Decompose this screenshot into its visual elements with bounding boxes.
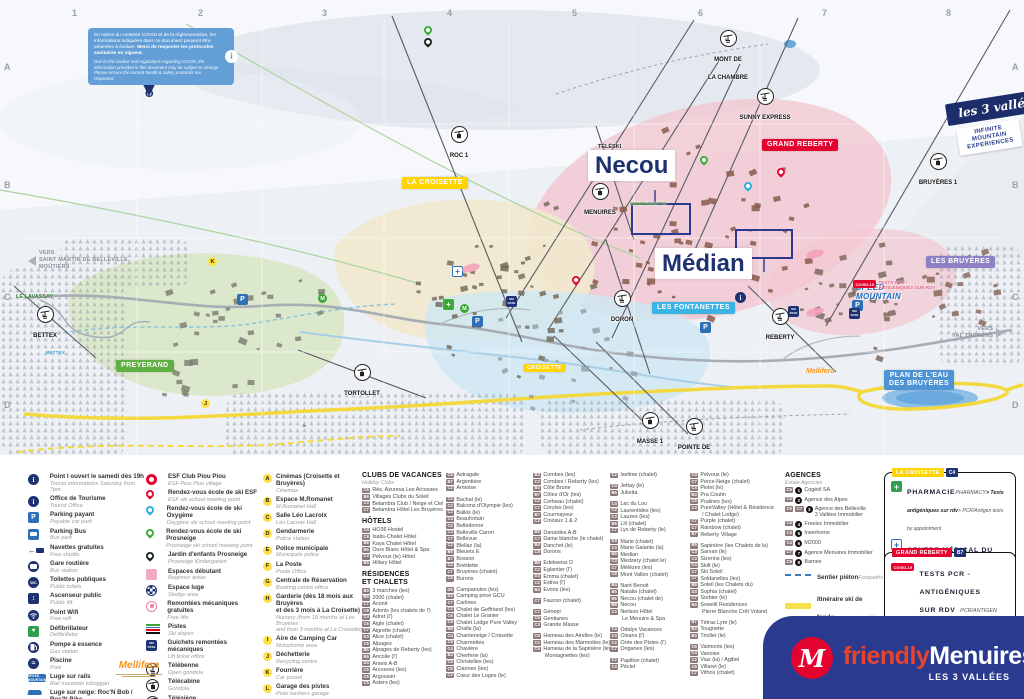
legend-item-wifi: Point WifiFree wifi <box>28 610 146 623</box>
grid-ref-chip: B7 <box>690 532 698 538</box>
directory-entry: B33 marches (les) <box>362 588 446 595</box>
grid-ref-chip: C7 <box>362 602 370 608</box>
luge-neige-icon <box>28 690 46 695</box>
menuires-monogram-icon: M <box>791 637 833 679</box>
grid-ref-chip: B6 <box>362 541 370 547</box>
directory-entry: C2Orée des Pistes (l') <box>610 640 694 647</box>
directory-entry: C4Adret (l') <box>362 614 446 621</box>
grid-ref-chip: B4 <box>690 602 698 608</box>
map-label-sunny-express: SUNNY EXPRESS <box>739 88 791 124</box>
grid-col-6: 6 <box>698 8 703 18</box>
map-label-bruyeres-1: BRUYÈRES 1 <box>912 153 964 189</box>
directory-entry: C2Cœur des Loges (le) <box>446 672 530 679</box>
grid-ref-chip: B3 <box>533 473 541 479</box>
letter-J-icon: J <box>263 652 272 661</box>
map-label-mont-de-la-chambre: MONT DELA CHAMBRE <box>702 30 754 84</box>
map-label-vers-saint-martin: VERS SAINT MARTIN DE BELLEVILLE, MOÛTIER… <box>28 250 130 271</box>
directory-entry: C4Chavière <box>446 646 530 653</box>
legend-item-letter-B: BEspace M.RomanetM.Romanet Hall <box>263 497 363 510</box>
grid-ref-chip: C3 <box>533 622 541 628</box>
map-label-roc-1: ROC 1 <box>433 126 485 162</box>
directory-entry: C7Aigrette (chalet) <box>362 627 446 634</box>
map-poi-letter: K <box>208 257 217 266</box>
grid-ref-chip: B5 <box>446 550 454 556</box>
legend-item-letter-A: ACinémas (Croisette et Bruyères)Cinemas <box>263 474 363 494</box>
legend-item-letter-K: KFourrièreCar pound <box>263 668 363 681</box>
directory-entry: C7Faucon (chalet) <box>533 598 617 605</box>
grid-ref-chip: C4 <box>610 501 618 507</box>
grid-ref-chip: C2 <box>446 563 454 569</box>
legend-item-letter-C: CSalle Léo LacroixLéo Lacroix Hall <box>263 513 363 526</box>
map-label-les-fontanettes: LES FONTANETTES <box>652 302 735 314</box>
grid-ref-chip: B6 <box>533 561 541 567</box>
grid-row-A: A <box>1012 62 1019 72</box>
directory-entry: C5Hameau de la Sapinière (le) <box>533 646 617 653</box>
directory-entry: C7Origanes (les) <box>610 646 694 653</box>
trail-dash: Sentier piétonFootpaths <box>785 566 885 584</box>
legend-item-pin-red: Rendez-vous école de ski ESFESF ski scho… <box>146 490 262 503</box>
letter-H-icon: H <box>263 594 272 603</box>
letter-C-icon: C <box>263 513 272 522</box>
grid-ref-chip: B7 <box>446 479 454 485</box>
grid-ref-chip: C5 <box>362 681 370 687</box>
directory-entry: D2Camping privé GCU <box>446 593 530 600</box>
grid-ref-chip: C7 <box>362 628 370 634</box>
grid-ref-chip: C4 <box>610 633 618 639</box>
grid-ref-chip: C3 <box>690 550 698 556</box>
mont-de-la-chambre-lift-icon <box>720 30 737 47</box>
map-label-bettex-lift: BETTEX <box>19 306 71 342</box>
grid-ref-chip: C4 <box>610 627 618 633</box>
directory-entry: C7Soldanelles (les) <box>690 575 774 582</box>
directory-entry: C7Bruyères (chalet) <box>446 569 530 576</box>
directory-entry: C2Viaz (la) / Agibel <box>690 657 774 664</box>
directory-entry: B5Challe (la) <box>446 626 530 633</box>
grid-ref-chip: B5 <box>610 490 618 496</box>
grid-ref-chip: C7 <box>362 507 370 513</box>
grid-ref-chip: C4 <box>446 633 454 639</box>
directory-column-3: B3Combes (les)C2Combes / Reberty (les)B4… <box>533 472 617 659</box>
grid-ref-chip: B7 <box>690 620 698 626</box>
pistes-icon <box>146 624 164 634</box>
grid-ref-chip: C3 <box>690 505 698 511</box>
parking-icon: P <box>28 512 46 523</box>
directory-entry: C4Chanteneige / Croisette <box>446 633 530 640</box>
directory-entry: C5Hameau des Airelles (le) <box>533 633 617 640</box>
grid-ref-chip: C2 <box>533 519 541 525</box>
legend-column-ski: ESF Club Piou PiouESF Piou Piou villageR… <box>146 474 262 699</box>
directory-entry: C2Hameau des Marmottes (le) <box>533 640 617 647</box>
grid-ref-chip: C7 <box>610 528 618 534</box>
map-label-menuires: MENUIRES <box>574 183 626 219</box>
wifi-icon <box>28 610 46 621</box>
sunny-express-lift-icon <box>757 88 774 105</box>
grand-reberty-tag: GRAND REBERTY <box>892 548 952 557</box>
grid-ref-chip: C3 <box>362 501 370 507</box>
grid-ref-chip: C4 <box>690 473 698 479</box>
map-poi-parking: P <box>700 322 711 333</box>
pointe-de-la-masse-lift-icon <box>686 418 703 435</box>
grid-ref-chip: C4 <box>362 615 370 621</box>
directory-entry: C2Cristaux 1 & 2 <box>533 518 617 525</box>
grid-ref-chip: C5 <box>446 576 454 582</box>
grid-ref-chip: D3 <box>533 574 541 580</box>
letter-A-icon: A <box>263 474 272 483</box>
agency-number-2: 2 <box>795 497 802 504</box>
map-poi-pink-zone <box>806 250 824 258</box>
directory-entry: C2Estiva (l') <box>533 580 617 587</box>
grid-ref-chip: C7 <box>690 525 698 531</box>
directory-entry: C4Jettay (le) <box>610 483 694 490</box>
directory-entry: C3Lauzes (les) <box>610 514 694 521</box>
grid-ref-chip: C2 <box>446 543 454 549</box>
directory-entry: C5Charmettes <box>446 639 530 646</box>
grid-ref-chip: C5 <box>533 550 541 556</box>
directory-entry: C4Beaufortain <box>446 516 530 523</box>
directory-header: CLUBS DE VACANCES <box>362 472 446 480</box>
grid-ref-chip: C4 <box>610 545 618 551</box>
legend-item-pistes: PistesSki slopes <box>146 624 262 637</box>
directory-entry: B6Edelweiss D <box>533 560 617 567</box>
directory-column-5: C4Pelvoux (le)C7Perce-Neige (chalet)C4Pi… <box>690 472 774 677</box>
brand-name: friendlyMenuires <box>843 642 1024 671</box>
directory-entry: C2Laurentides (les) <box>610 507 694 514</box>
directory-entry: B5Natalia (chalet) <box>610 589 694 596</box>
grid-ref-chip: C2 <box>533 640 541 646</box>
grid-col-4: 4 <box>447 8 452 18</box>
directory-entry: B3Triollet (le) <box>690 633 774 640</box>
legend-item-gas: Pompe à essenceGas station <box>28 642 146 655</box>
grid-ref-chip: C6 <box>610 572 618 578</box>
covid-box-title2: SUR RDV <box>919 607 955 614</box>
masse-1-lift-icon <box>642 412 659 429</box>
legend-item-bus-station: Gare routièreBus station <box>28 561 146 574</box>
pin-red-icon <box>146 490 164 498</box>
agencies-header: AGENCES <box>785 472 881 480</box>
directory-entry: C2Combes / Reberty (les) <box>533 479 617 486</box>
covid-19-map-badge: COVID-19 <box>853 280 876 288</box>
legend-item-free-lift: Remontées mécaniques gratuitesFree lifts <box>146 601 262 621</box>
grid-ref-chip: C6 <box>362 621 370 627</box>
directory-entry: C3Grande Masse <box>533 622 617 629</box>
directory-entry: C7Aconit <box>362 601 446 608</box>
dash-swatch <box>785 572 811 578</box>
directory-entry: C5Dorons <box>533 549 617 556</box>
grid-ref-chip: C7 <box>533 609 541 615</box>
legend-item-letter-G: GCentrale de RéservationBooking centre o… <box>263 578 363 591</box>
legend-item-letter-I: IAire de Camping CarMotorhome area <box>263 636 363 649</box>
map-label-median: Médian <box>655 248 752 279</box>
grid-ref-chip: B4 <box>533 543 541 549</box>
map-label-necou: Necou <box>588 150 675 181</box>
legend-item-wc: WCToilettes publiquesPublic toilets <box>28 577 146 590</box>
map-label-tortollet: TORTOLLET <box>336 364 388 400</box>
directory-entry: C2Belledonne <box>446 523 530 530</box>
grid-ref-chip: C7 <box>690 569 698 575</box>
legend-item-beginner: Espaces débutantBeginner areas <box>146 569 262 582</box>
yellow-swatch <box>785 603 811 609</box>
directory-entry: C7Coryles (les) <box>533 505 617 512</box>
directory-entry: C5Astragale <box>446 472 530 479</box>
grid-ref-chip: C5 <box>690 499 698 505</box>
directory-entry: C2Eglantier (l') <box>533 567 617 574</box>
grid-ref-chip: D3 <box>362 634 370 640</box>
agency-entry: C44Freeloc Immobilier <box>785 521 881 528</box>
agency-entry: C45Inserhome <box>785 530 881 537</box>
directory-entry: B5Median <box>610 551 694 558</box>
grid-ref-chip: C7 <box>446 600 454 606</box>
croisette-tag: LA CROISETTE <box>892 468 944 477</box>
directory-entry: C2Papillon (chalet) <box>610 657 694 664</box>
grid-ref-chip: C7 <box>610 647 618 653</box>
menuires-lift-icon <box>592 183 609 200</box>
grid-ref-chip: B3 <box>690 633 698 639</box>
agencies-subheader: Estate Agencies <box>785 480 881 486</box>
directory-entry: C2Balcons d'Olympie (les) <box>446 503 530 510</box>
grid-ref-chip: C4 <box>690 486 698 492</box>
grid-ref-chip: B5 <box>446 627 454 633</box>
directory-entry: C5Valmonts (les) <box>690 644 774 651</box>
directory-entry: B7Reberty Village <box>690 531 774 538</box>
grid-ref-chip: C4 <box>690 651 698 657</box>
grid-ref-chip: C5 <box>446 640 454 646</box>
directory-entry: B6Necou <box>610 602 694 609</box>
grid-ref-chip: C6 <box>533 616 541 622</box>
grid-ref-chip: B3 <box>690 627 698 633</box>
letter-I-icon: I <box>263 636 272 645</box>
directory-entry: B4Evons (les) <box>533 587 617 594</box>
agencies-list: AGENCESEstate AgenciesC51Cogéril SAC42Ag… <box>785 472 881 569</box>
directory-entry: B6Villages Clubs du Soleil <box>362 494 446 501</box>
grid-ref-chip: C4 <box>446 517 454 523</box>
grid-ref-chip: D2 <box>446 594 454 600</box>
directory-entry: C6Rés. Azureva Les Arcosses <box>362 487 446 494</box>
map-label-croisette-mini: CROISETTE <box>524 364 565 372</box>
directory-entry: B5Alpages de Reberty (les) <box>362 647 446 654</box>
reberty-lift-icon <box>772 308 789 325</box>
map-poi-pink-zone <box>806 308 824 316</box>
agency-number-5: 5 <box>795 530 802 537</box>
directory-entry: C2Blellaz (la) <box>446 542 530 549</box>
directory-entry: B4Danchet (le) <box>533 542 617 549</box>
directory-entry: C7Purple (chalet) <box>690 518 774 525</box>
grid-ref-chip: C7 <box>533 505 541 511</box>
wc-icon: WC <box>28 577 46 588</box>
grid-ref-chip: C5 <box>690 664 698 670</box>
ski-pass-icon: SKIPASS <box>146 640 164 651</box>
directory-entry: D3Sophia (chalet) <box>690 589 774 596</box>
defib-icon: ♥ <box>28 626 46 637</box>
directory-entry: C4Lac du Lou <box>610 501 694 508</box>
directory-entry: C2Boédette <box>446 562 530 569</box>
map-label-plan-de-leau-des-bruyeres: PLAN DE L'EAU DES BRUYÈRES <box>884 370 954 390</box>
map-label-grand-reberty: GRAND REBERTY <box>762 139 838 151</box>
legend-item-ski-pass: SKIPASSGuichets remontées mécaniquesLift… <box>146 640 262 660</box>
directory-entry: C5Clarines (les) <box>446 666 530 673</box>
grid-ref-chip: C2 <box>446 486 454 492</box>
directory-entry: B4Soweill Residences <box>690 602 774 609</box>
grid-ref-chip: C7 <box>690 596 698 602</box>
grid-ref-chip: C2 <box>446 510 454 516</box>
directory-entry: C4Oisans (l') <box>610 633 694 640</box>
directory-entry: B5Julietta <box>610 490 694 497</box>
arrow-left-icon <box>28 256 36 266</box>
directory-entry: C3Belleville Caron <box>446 529 530 536</box>
directory-header-2: ET CHALETS <box>362 579 446 587</box>
map-poi-pin-green <box>424 26 432 34</box>
grid-ref-chip: C2 <box>690 657 698 663</box>
grid-ref-chip: B5 <box>610 552 618 558</box>
info-icon: i <box>28 474 46 485</box>
legend-item-letter-E: EPolice municipaleMunicipale police <box>263 546 363 559</box>
legend-item-letter-L: LGarage des pistesPiste bashers garage <box>263 684 363 697</box>
covid-notice: En raison du contexte COVID et de la rég… <box>88 28 234 85</box>
grid-col-3: 3 <box>322 8 327 18</box>
map-poi-info: i <box>735 292 746 303</box>
grid-ref-chip: D6 <box>446 587 454 593</box>
directory-entry: C3Sizerins (les) <box>690 556 774 563</box>
legend-item-letter-F: FLa PostePoste Office <box>263 562 363 575</box>
map-poi-cross-green: + <box>443 299 454 310</box>
directory-entry: C4HO36 Hostel <box>362 527 446 534</box>
grid-ref-chip: C3 <box>610 609 618 615</box>
brand-subtitle: LES 3 VALLÉES <box>929 672 1010 682</box>
grid-ref-chip: C3 <box>690 556 698 562</box>
tortollet-lift-icon <box>354 364 371 381</box>
legend-item-info: iOffice de TourismeTourist Office <box>28 496 146 509</box>
grid-row-D: D <box>1012 400 1019 410</box>
grid-ref-chip: D3 <box>690 589 698 595</box>
directory-entry: C6Mont Vallon (chalet) <box>610 571 694 578</box>
grid-ref-chip: C7 <box>690 576 698 582</box>
legend-item-luge-neige: Luge sur neige: Roc'N Bob / Roc'N BikeRo… <box>28 690 146 699</box>
map-poi-pin-red <box>572 276 580 284</box>
grid-ref-chip: C3 <box>610 514 618 520</box>
directory-entry: B4Côte Brune <box>533 485 617 492</box>
grid-ref-chip: C2 <box>533 499 541 505</box>
bettex-lift-lift-icon <box>37 306 54 323</box>
roc-1-lift-icon <box>451 126 468 143</box>
mellifera-name: Mellifera <box>119 660 160 671</box>
directory-entry: B7Bosson <box>446 556 530 563</box>
covid-19-badge: COVID-19 <box>891 563 914 571</box>
directory-entry: B3Cherferie (la) <box>446 652 530 659</box>
letter-B-icon: B <box>263 497 272 506</box>
grid-ref-chip: C4 <box>362 554 370 560</box>
map-poi-parking: P <box>472 316 483 327</box>
grid-ref-chip: B4 <box>610 583 618 589</box>
map-poi-ski-pass: SKIPASS <box>788 306 799 317</box>
grid-ref-chip: C5 <box>533 647 541 653</box>
directory-entry: C5Asters (les) <box>362 680 446 687</box>
legend-item-info: iPoint I ouvert le samedi dès 19hTourist… <box>28 474 146 493</box>
grid-ref-chip: B7 <box>446 556 454 562</box>
grid-ref-chip: B3 <box>362 588 370 594</box>
directory-entry: B6Danaïdes A-B <box>533 529 617 536</box>
grid-ref-chip: C2 <box>533 580 541 586</box>
grid-ref-chip: C7 <box>690 479 698 485</box>
grid-ref-chip: C2 <box>446 607 454 613</box>
directory-entry: C4Péclet <box>610 664 694 671</box>
legend-item-telebenne: TélébenneOpen gondola <box>146 663 262 676</box>
grid-ref-chip: C5 <box>446 666 454 672</box>
directory-entry: C5Burons <box>446 575 530 582</box>
directory-entry: C5Pralines (les) <box>690 498 774 505</box>
directory-entry: B5Bleuets E <box>446 549 530 556</box>
grid-row-D: D <box>4 400 11 410</box>
directory-entry: B3Combes (les) <box>533 472 617 479</box>
map-poi-parking: P <box>237 294 248 305</box>
directory-entry: C3Medzery (chalet le) <box>610 558 694 565</box>
friendly-menuires-logo: M friendlyMenuires LES 3 VALLÉES <box>763 616 1024 699</box>
agency-number-3: 3 <box>806 506 813 513</box>
covid-notice-en: Due to the context and regulations regar… <box>94 59 220 81</box>
legend-item-defib: ♥DéfibrillateurDefibrillator <box>28 626 146 639</box>
bus-station-icon <box>28 561 46 572</box>
map-label-montagnette-piste: MONTAGNETTE <box>630 202 667 207</box>
directory-entry: C7Vithos (chalet) <box>690 670 774 677</box>
grid-ref-chip: B5 <box>362 595 370 601</box>
info-icon: i <box>28 496 46 507</box>
letter-D-icon: D <box>263 529 272 538</box>
map-label-bettex-piste: BETTEX <box>46 351 65 356</box>
directory-entry: C7Rainbow (chalet) <box>690 525 774 532</box>
telecabine-icon <box>146 679 164 692</box>
directory-entry: C3Neilson Hôtel <box>610 609 694 616</box>
directory-entry: C5Villaret (le) <box>690 664 774 671</box>
grid-row-C: C <box>4 292 11 302</box>
directory-entry: C6Argousier <box>362 674 446 681</box>
grid-ref-chip: C7 <box>533 598 541 604</box>
legend-item-piou: ESF Club Piou PiouESF Piou Piou village <box>146 474 262 487</box>
grid-ref-chip: C6 <box>362 488 370 494</box>
grid-ref-chip: B6 <box>362 494 370 500</box>
map-poi-pin-dark <box>424 38 432 46</box>
grid-ref-chip: C6 <box>362 674 370 680</box>
legend-item-public-lift: ↕Ascenseur publicPublic lift <box>28 593 146 606</box>
grid-ref-chip: C2 <box>610 508 618 514</box>
directory-entry: B5Hillary Hôtel <box>362 560 446 567</box>
grid-ref-chip: B7 <box>533 512 541 518</box>
agency-number-7: 7 <box>795 550 802 557</box>
directory-entry: Le Menuire & Spa <box>622 615 694 622</box>
agency-number-6: 6 <box>795 540 802 547</box>
grid-col-1: 1 <box>72 8 77 18</box>
letter-G-icon: G <box>263 578 272 587</box>
grid-ref-chip: C5 <box>446 620 454 626</box>
directory-entry: B4Pra Coutin <box>690 492 774 499</box>
directory-subheader: Holiday Clubs <box>362 480 446 486</box>
pin-blue-icon <box>146 506 163 514</box>
directory-entry: C2Corbeau (chalet) <box>533 498 617 505</box>
grid-ref-chip: C5 <box>446 613 454 619</box>
directory-entry: C4Marie Galante (la) <box>610 545 694 552</box>
grid-col-7: 7 <box>822 8 827 18</box>
grid-ref-chip: C7 <box>533 536 541 542</box>
grid-ref-chip: C3 <box>446 530 454 536</box>
directory-entry: C7Bellevue <box>446 536 530 543</box>
directory-entry: D4Aravis A-B <box>362 660 446 667</box>
letter-E-icon: E <box>263 546 272 555</box>
map-label-vers-val-thorens: VERS VAL THORENS <box>952 326 1004 340</box>
directory-column-2: C5AstragaleB7ArgentièreC2ArmoiseC2Bachal… <box>446 472 530 679</box>
grid-row-C: C <box>1012 292 1019 302</box>
grid-ref-chip: C4 <box>446 646 454 652</box>
grid-col-8: 8 <box>946 8 951 18</box>
directory-entry: D3Alice (chalet) <box>362 634 446 641</box>
grid-ref-chip: B4 <box>533 486 541 492</box>
legend-item-parking: PParking payantPayable car park <box>28 512 146 525</box>
